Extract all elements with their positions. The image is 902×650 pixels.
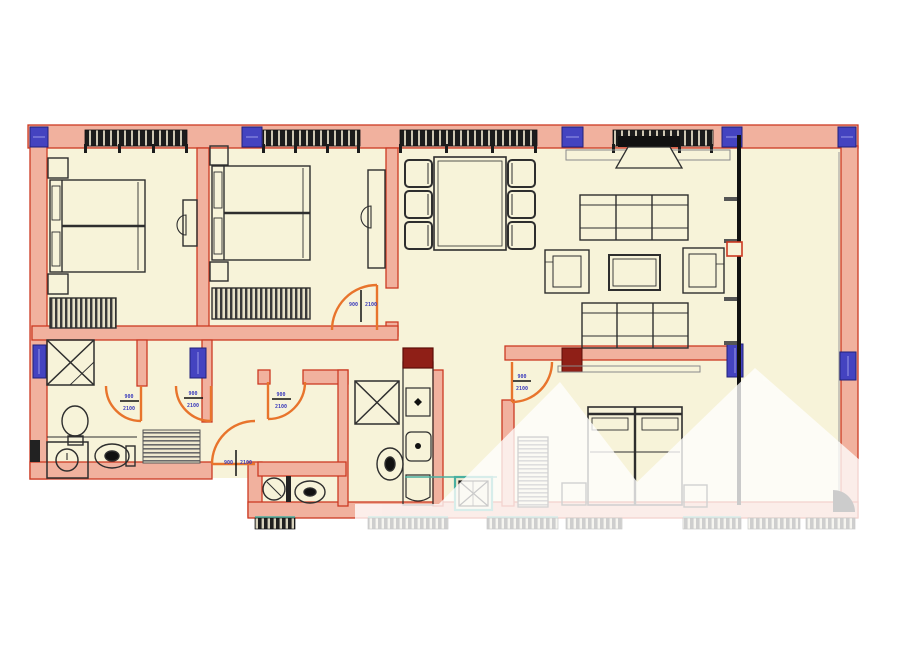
dim-top: 900 (188, 391, 197, 397)
wall-dark-mark (286, 476, 291, 502)
window-band-icon (263, 130, 360, 146)
dresser-icon (212, 288, 310, 319)
radiator-icon (562, 348, 582, 372)
bottom-hatch-icon (255, 518, 295, 529)
wall-dark-mark (30, 440, 40, 462)
window-band-icon (400, 130, 537, 146)
rug-icon (143, 430, 200, 463)
floor-plan-canvas: { "title": "apartment-floor-plan", "colo… (0, 0, 902, 650)
window-band-icon (85, 130, 187, 146)
wall-bed1-bed2 (197, 148, 209, 334)
wall-bed2-right (386, 148, 398, 288)
dim-bottom: 2100 (123, 406, 135, 412)
divider-red-box (727, 242, 742, 256)
floor-plan-drawing: 900 2100 900 2100 900 2100 900 2100 900 … (0, 0, 902, 650)
dim-top: 900 (124, 394, 133, 400)
wall-corridor-south-a (258, 370, 270, 384)
dim-bottom: 2100 (240, 460, 252, 466)
dim-top: 900 (224, 460, 233, 466)
wall-left (30, 146, 47, 479)
dim-top: 900 (349, 302, 358, 308)
dim-bottom: 2100 (275, 404, 287, 410)
dim-top: 900 (517, 374, 526, 380)
dim-bottom: 2100 (365, 302, 377, 308)
watermark-chimney (798, 486, 832, 514)
wall-bath1-right (137, 340, 147, 386)
dim-bottom: 2100 (516, 386, 528, 392)
radiator-icon (403, 348, 433, 368)
wall-bath2-left (338, 370, 348, 506)
watermark-band (355, 504, 862, 530)
dim-bottom: 2100 (187, 403, 199, 409)
wall-bath2-right (433, 370, 443, 506)
dresser-icon (50, 298, 116, 328)
dim-top: 900 (276, 392, 285, 398)
tv-icon (616, 136, 682, 168)
wall-bath2-top (258, 462, 346, 476)
